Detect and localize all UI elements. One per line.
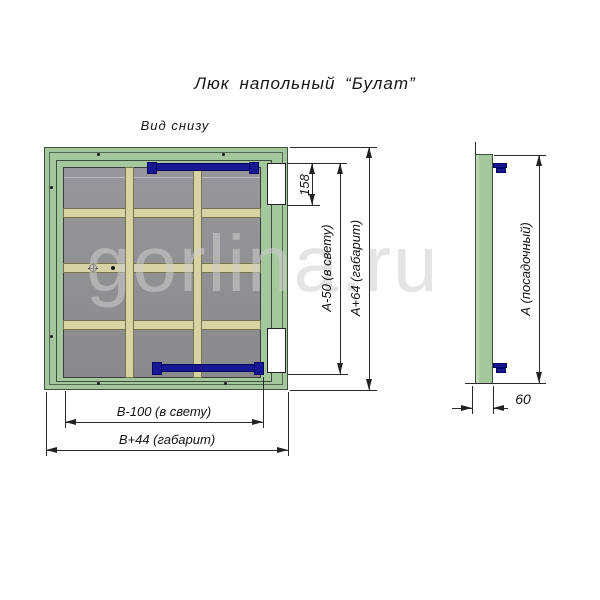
latch-tab-top-left xyxy=(147,162,157,174)
screw-mark xyxy=(97,153,100,156)
stiffener-horizontal xyxy=(63,320,261,330)
ext-line xyxy=(288,392,289,456)
latch-bar-bottom xyxy=(154,364,262,372)
hinge-plate-bottom xyxy=(267,328,286,373)
view-label: Вид снизу xyxy=(130,118,220,133)
arrowhead xyxy=(536,372,542,383)
screw-mark xyxy=(50,186,53,189)
side-latch-top-foot xyxy=(496,168,506,173)
arrowhead xyxy=(366,379,372,390)
ext-line xyxy=(472,386,473,414)
ext-line xyxy=(290,147,377,148)
dim-line-b100 xyxy=(65,422,263,423)
dim-line-a50 xyxy=(340,163,341,375)
arrowhead xyxy=(536,155,542,166)
dim-label-seat: А (посадочный) xyxy=(518,169,534,369)
ext-line xyxy=(288,374,348,375)
latch-tab-bottom-left xyxy=(152,362,162,375)
ext-line xyxy=(465,383,546,384)
center-mark-icon xyxy=(89,264,97,272)
dim-line-b44 xyxy=(46,450,288,451)
ext-line xyxy=(290,390,377,391)
hinge-plate-top xyxy=(267,163,286,205)
dim-label-width-overall: В+44 (габарит) xyxy=(46,432,288,448)
side-profile-bar xyxy=(475,154,493,384)
screw-mark xyxy=(224,382,227,385)
dim-label-height-overall: А+64 (габарит) xyxy=(348,168,364,368)
dim-label-158: 158 xyxy=(297,160,311,210)
center-mark-vline xyxy=(93,263,94,273)
drawing-title: Люк напольный “Булат” xyxy=(95,74,515,94)
drawing-sheet: Люк напольный “Булат” Вид снизу xyxy=(0,0,600,600)
stiffener-horizontal xyxy=(63,208,261,218)
arrowhead xyxy=(493,405,504,411)
dim-line-a64 xyxy=(369,147,370,390)
side-latch-bottom-foot xyxy=(496,368,506,373)
dim-label-height-clear: А-50 (в свету) xyxy=(319,168,335,368)
dim-line-a-seat xyxy=(539,155,540,384)
side-edge-stub-line xyxy=(475,142,476,154)
dim-label-width-clear: В-100 (в свету) xyxy=(64,404,264,420)
screw-mark xyxy=(97,382,100,385)
ext-line xyxy=(263,377,264,428)
dim-label-thickness: 60 xyxy=(505,391,541,407)
arrowhead xyxy=(461,405,472,411)
screw-mark xyxy=(50,335,53,338)
arrowhead xyxy=(366,147,372,158)
arrowhead xyxy=(337,163,343,174)
latch-bar-top xyxy=(149,163,257,171)
stiffener-vertical xyxy=(125,167,134,378)
latch-tab-bottom-right xyxy=(254,362,264,375)
screw-mark xyxy=(111,266,115,270)
latch-tab-top-right xyxy=(249,162,259,174)
screw-mark xyxy=(222,153,225,156)
stiffener-vertical xyxy=(193,167,202,378)
arrowhead xyxy=(337,363,343,374)
panel-highlight-line xyxy=(64,177,260,178)
